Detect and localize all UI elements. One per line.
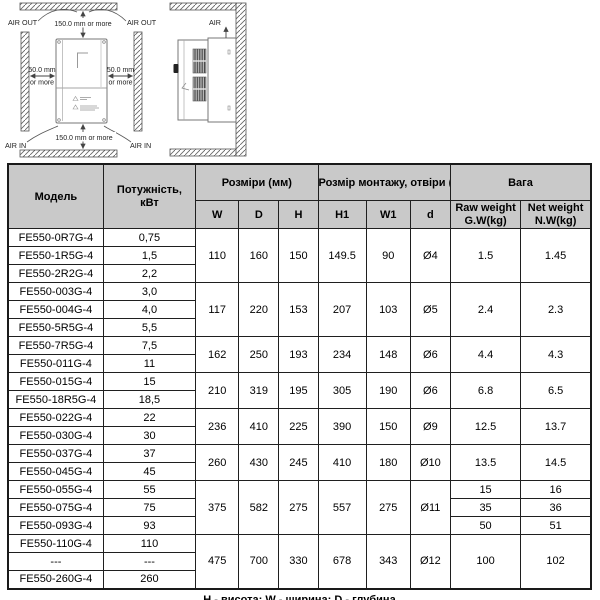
raw-weight-cell: 100 bbox=[450, 535, 520, 589]
power-cell: 1,5 bbox=[103, 247, 195, 265]
mount-hole-cell: Ø11 bbox=[410, 481, 450, 535]
header-col-h1: H1 bbox=[318, 201, 366, 229]
dim-h-cell: 275 bbox=[279, 481, 318, 535]
dim-h-cell: 150 bbox=[279, 229, 318, 283]
power-cell: 11 bbox=[103, 355, 195, 373]
mount-h1-cell: 207 bbox=[318, 283, 366, 337]
right-clearance-label-1: 50.0 mm bbox=[107, 67, 134, 74]
model-cell: FE550-260G-4 bbox=[8, 571, 103, 589]
net-weight-cell: 36 bbox=[521, 499, 591, 517]
dim-d-cell: 410 bbox=[239, 409, 279, 445]
header-col-h: H bbox=[279, 201, 318, 229]
dim-h-cell: 153 bbox=[279, 283, 318, 337]
header-power: Потужність,кВт bbox=[103, 164, 195, 229]
raw-weight-cell: 13.5 bbox=[450, 445, 520, 481]
raw-weight-cell: 1.5 bbox=[450, 229, 520, 283]
mount-hole-cell: Ø10 bbox=[410, 445, 450, 481]
table-row: FE550-015G-4 15 210 319 195 305 190 Ø6 6… bbox=[8, 373, 591, 391]
mount-w1-cell: 343 bbox=[366, 535, 410, 589]
table-caption: Н - висота; W - ширина; D - глубина bbox=[7, 594, 592, 600]
wall-left bbox=[21, 32, 29, 131]
air-in-left-label: AIR IN bbox=[5, 141, 26, 150]
raw-weight-cell: 12.5 bbox=[450, 409, 520, 445]
spec-table: Модель Потужність,кВт Розміри (мм) Розмі… bbox=[7, 163, 592, 590]
mount-h1-cell: 557 bbox=[318, 481, 366, 535]
dim-w-cell: 117 bbox=[196, 283, 239, 337]
model-cell: FE550-2R2G-4 bbox=[8, 265, 103, 283]
mount-w1-cell: 90 bbox=[366, 229, 410, 283]
dim-h-cell: 225 bbox=[279, 409, 318, 445]
net-weight-cell: 51 bbox=[521, 517, 591, 535]
air-out-right-label: AIR OUT bbox=[127, 18, 157, 27]
model-cell: FE550-18R5G-4 bbox=[8, 391, 103, 409]
dim-d-cell: 220 bbox=[239, 283, 279, 337]
power-cell: 3,0 bbox=[103, 283, 195, 301]
model-cell: FE550-003G-4 bbox=[8, 283, 103, 301]
dim-d-cell: 250 bbox=[239, 337, 279, 373]
mount-w1-cell: 180 bbox=[366, 445, 410, 481]
wall-top bbox=[20, 3, 117, 10]
air-out-left-label: AIR OUT bbox=[8, 18, 38, 27]
model-cell: FE550-093G-4 bbox=[8, 517, 103, 535]
table-row: FE550-110G-4 110 475 700 330 678 343 Ø12… bbox=[8, 535, 591, 553]
header-dimensions: Розміри (мм) bbox=[196, 164, 318, 201]
mount-w1-cell: 190 bbox=[366, 373, 410, 409]
header-col-hole: d bbox=[410, 201, 450, 229]
raw-weight-cell: 35 bbox=[450, 499, 520, 517]
raw-weight-cell: 2.4 bbox=[450, 283, 520, 337]
power-cell: 93 bbox=[103, 517, 195, 535]
table-row: FE550-0R7G-4 0,75 110 160 150 149.5 90 Ø… bbox=[8, 229, 591, 247]
net-weight-cell: 102 bbox=[521, 535, 591, 589]
header-col-w1: W1 bbox=[366, 201, 410, 229]
power-cell: 110 bbox=[103, 535, 195, 553]
inverter-front bbox=[56, 39, 107, 123]
power-cell: 22 bbox=[103, 409, 195, 427]
side-wall-top bbox=[170, 3, 236, 10]
model-cell: FE550-045G-4 bbox=[8, 463, 103, 481]
dim-d-cell: 700 bbox=[239, 535, 279, 589]
raw-weight-cell: 6.8 bbox=[450, 373, 520, 409]
dim-w-cell: 260 bbox=[196, 445, 239, 481]
left-clearance-label-1: 50.0 mm bbox=[28, 67, 55, 74]
mount-h1-cell: 305 bbox=[318, 373, 366, 409]
model-cell: FE550-030G-4 bbox=[8, 427, 103, 445]
power-cell: 7,5 bbox=[103, 337, 195, 355]
net-weight-cell: 1.45 bbox=[521, 229, 591, 283]
dim-h-cell: 330 bbox=[279, 535, 318, 589]
net-weight-cell: 14.5 bbox=[521, 445, 591, 481]
front-view: 150.0 mm or more 150.0 mm or more 50.0 m… bbox=[5, 3, 157, 157]
model-cell: FE550-5R5G-4 bbox=[8, 319, 103, 337]
mount-h1-cell: 234 bbox=[318, 337, 366, 373]
model-cell: FE550-037G-4 bbox=[8, 445, 103, 463]
header-net-weight: Net weightN.W(kg) bbox=[521, 201, 591, 229]
power-cell: 37 bbox=[103, 445, 195, 463]
mount-hole-cell: Ø12 bbox=[410, 535, 450, 589]
net-weight-cell: 4.3 bbox=[521, 337, 591, 373]
raw-weight-cell: 15 bbox=[450, 481, 520, 499]
table-row: FE550-055G-4 55 375 582 275 557 275 Ø11 … bbox=[8, 481, 591, 499]
model-cell: FE550-004G-4 bbox=[8, 301, 103, 319]
header-model: Модель bbox=[8, 164, 103, 229]
model-cell: FE550-015G-4 bbox=[8, 373, 103, 391]
raw-weight-cell: 4.4 bbox=[450, 337, 520, 373]
mount-h1-cell: 410 bbox=[318, 445, 366, 481]
mount-h1-cell: 390 bbox=[318, 409, 366, 445]
air-in-right-label: AIR IN bbox=[130, 141, 151, 150]
mount-w1-cell: 275 bbox=[366, 481, 410, 535]
header-raw-weight: Raw weightG.W(kg) bbox=[450, 201, 520, 229]
bottom-clearance-label: 150.0 mm or more bbox=[55, 135, 112, 142]
mount-w1-cell: 150 bbox=[366, 409, 410, 445]
power-cell: 55 bbox=[103, 481, 195, 499]
dim-d-cell: 319 bbox=[239, 373, 279, 409]
dim-h-cell: 193 bbox=[279, 337, 318, 373]
installation-clearance-diagram: 150.0 mm or more 150.0 mm or more 50.0 m… bbox=[0, 0, 600, 162]
header-col-d: D bbox=[239, 201, 279, 229]
net-weight-cell: 2.3 bbox=[521, 283, 591, 337]
mount-hole-cell: Ø9 bbox=[410, 409, 450, 445]
net-weight-cell: 16 bbox=[521, 481, 591, 499]
power-cell: 75 bbox=[103, 499, 195, 517]
raw-weight-cell: 50 bbox=[450, 517, 520, 535]
datasheet-page: 150.0 mm or more 150.0 mm or more 50.0 m… bbox=[0, 0, 600, 600]
right-clearance-label-2: or more bbox=[108, 80, 132, 87]
wall-right bbox=[134, 32, 142, 131]
model-cell: FE550-011G-4 bbox=[8, 355, 103, 373]
dim-d-cell: 430 bbox=[239, 445, 279, 481]
table-row: FE550-003G-4 3,0 117 220 153 207 103 Ø5 … bbox=[8, 283, 591, 301]
dim-w-cell: 210 bbox=[196, 373, 239, 409]
side-air-label: AIR bbox=[209, 18, 221, 27]
mount-hole-cell: Ø6 bbox=[410, 373, 450, 409]
mount-h1-cell: 678 bbox=[318, 535, 366, 589]
table-row: FE550-022G-4 22 236 410 225 390 150 Ø9 1… bbox=[8, 409, 591, 427]
model-cell: FE550-7R5G-4 bbox=[8, 337, 103, 355]
net-weight-cell: 6.5 bbox=[521, 373, 591, 409]
side-view: AIR bbox=[170, 3, 246, 156]
mount-h1-cell: 149.5 bbox=[318, 229, 366, 283]
model-cell: FE550-110G-4 bbox=[8, 535, 103, 553]
power-cell: 30 bbox=[103, 427, 195, 445]
header-mounting: Розмір монтажу, отвіри (мм) bbox=[318, 164, 450, 201]
wall-bottom bbox=[20, 150, 117, 157]
model-cell: FE550-055G-4 bbox=[8, 481, 103, 499]
power-cell: 5,5 bbox=[103, 319, 195, 337]
dim-w-cell: 236 bbox=[196, 409, 239, 445]
dim-w-cell: 475 bbox=[196, 535, 239, 589]
side-wall-right bbox=[236, 3, 246, 156]
power-cell: --- bbox=[103, 553, 195, 571]
mount-hole-cell: Ø6 bbox=[410, 337, 450, 373]
dim-w-cell: 162 bbox=[196, 337, 239, 373]
header-col-w: W bbox=[196, 201, 239, 229]
power-cell: 4,0 bbox=[103, 301, 195, 319]
power-cell: 15 bbox=[103, 373, 195, 391]
mount-w1-cell: 103 bbox=[366, 283, 410, 337]
header-weight: Вага bbox=[450, 164, 591, 201]
model-cell: FE550-075G-4 bbox=[8, 499, 103, 517]
mount-hole-cell: Ø4 bbox=[410, 229, 450, 283]
dim-h-cell: 245 bbox=[279, 445, 318, 481]
dim-d-cell: 160 bbox=[239, 229, 279, 283]
model-cell: --- bbox=[8, 553, 103, 571]
side-knob bbox=[174, 64, 179, 73]
model-cell: FE550-1R5G-4 bbox=[8, 247, 103, 265]
dim-w-cell: 110 bbox=[196, 229, 239, 283]
power-cell: 18,5 bbox=[103, 391, 195, 409]
mount-w1-cell: 148 bbox=[366, 337, 410, 373]
mount-hole-cell: Ø5 bbox=[410, 283, 450, 337]
dim-d-cell: 582 bbox=[239, 481, 279, 535]
dim-w-cell: 375 bbox=[196, 481, 239, 535]
top-clearance-label: 150.0 mm or more bbox=[54, 21, 111, 28]
model-cell: FE550-0R7G-4 bbox=[8, 229, 103, 247]
left-clearance-label-2: or more bbox=[30, 80, 54, 87]
inverter-side bbox=[174, 38, 237, 122]
power-cell: 0,75 bbox=[103, 229, 195, 247]
power-cell: 260 bbox=[103, 571, 195, 589]
net-weight-cell: 13.7 bbox=[521, 409, 591, 445]
table-row: FE550-7R5G-4 7,5 162 250 193 234 148 Ø6 … bbox=[8, 337, 591, 355]
side-wall-bottom bbox=[170, 149, 236, 156]
power-cell: 2,2 bbox=[103, 265, 195, 283]
dim-h-cell: 195 bbox=[279, 373, 318, 409]
power-cell: 45 bbox=[103, 463, 195, 481]
model-cell: FE550-022G-4 bbox=[8, 409, 103, 427]
table-row: FE550-037G-4 37 260 430 245 410 180 Ø10 … bbox=[8, 445, 591, 463]
